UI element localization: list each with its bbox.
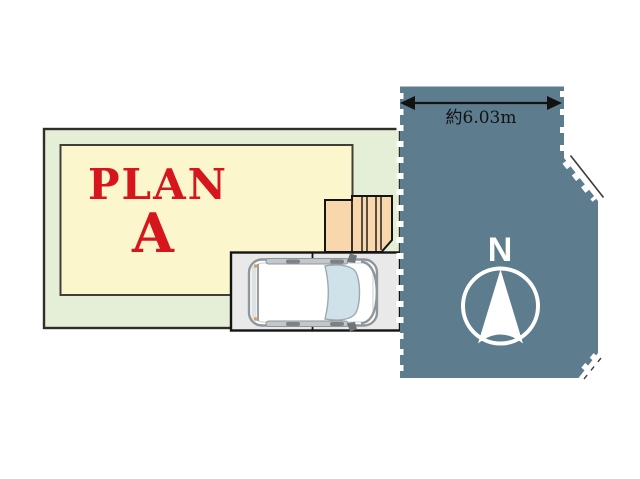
car-door-handle: [286, 322, 300, 326]
entrance-steps-outline: [325, 196, 392, 252]
width-dimension-label: 約6.03m: [446, 108, 517, 128]
car-tail-lamp: [254, 264, 258, 268]
car-windshield: [325, 265, 360, 320]
car-door-handle: [330, 322, 344, 326]
car-top-view: [249, 254, 377, 332]
site-plan-canvas: PLAN A: [0, 0, 640, 479]
entrance-steps: [325, 196, 392, 252]
plan-label-line2: A: [131, 201, 175, 265]
site-plan-diagram: PLAN A: [0, 0, 640, 479]
car-tail-lamp: [254, 317, 258, 321]
north-label: N: [488, 231, 513, 269]
car-door-handle: [330, 260, 344, 264]
car-door-handle: [286, 260, 300, 264]
car-rear-window: [252, 266, 257, 319]
